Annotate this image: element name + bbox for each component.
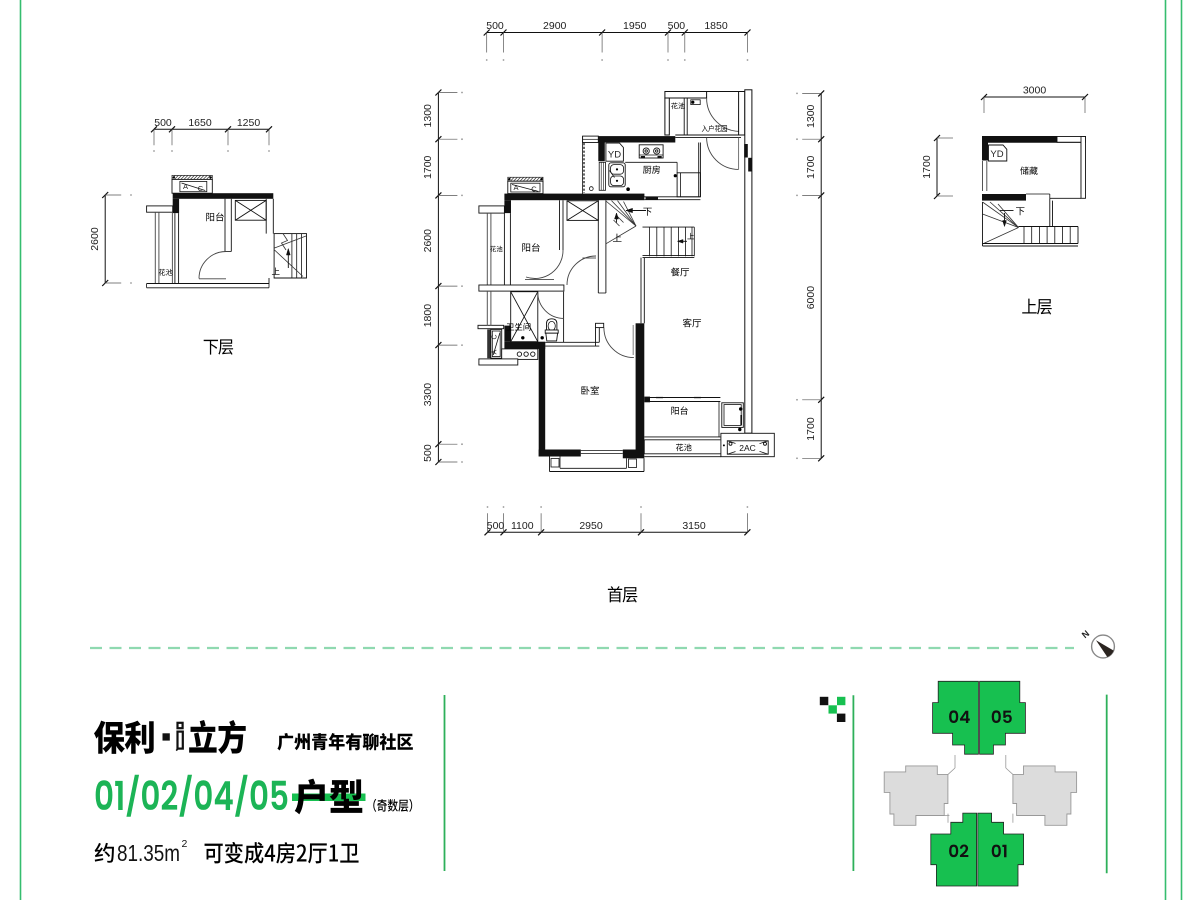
svg-text:500: 500 bbox=[422, 444, 434, 462]
svg-text:1300: 1300 bbox=[422, 104, 434, 128]
svg-text:2600: 2600 bbox=[422, 229, 434, 253]
svg-text:1700: 1700 bbox=[422, 155, 434, 179]
svg-text:2AC: 2AC bbox=[739, 443, 756, 453]
svg-text:6000: 6000 bbox=[805, 286, 817, 310]
svg-text:1100: 1100 bbox=[511, 520, 534, 532]
svg-text:1850: 1850 bbox=[704, 20, 728, 32]
svg-text:500: 500 bbox=[487, 520, 505, 532]
svg-text:3150: 3150 bbox=[682, 520, 706, 532]
svg-text:81.35m: 81.35m bbox=[117, 840, 180, 866]
svg-text:1700: 1700 bbox=[805, 155, 817, 179]
svg-text:C: C bbox=[531, 185, 537, 194]
svg-text:N: N bbox=[1080, 628, 1091, 640]
svg-text:1650: 1650 bbox=[188, 117, 212, 129]
svg-text:YD: YD bbox=[608, 150, 621, 161]
svg-text:2: 2 bbox=[182, 838, 188, 850]
svg-text:2600: 2600 bbox=[89, 227, 101, 251]
svg-text:1250: 1250 bbox=[237, 117, 261, 129]
svg-text:A: A bbox=[491, 349, 498, 354]
svg-text:A: A bbox=[183, 182, 188, 191]
svg-text:1800: 1800 bbox=[422, 304, 434, 328]
svg-text:A: A bbox=[513, 183, 518, 192]
svg-text:2900: 2900 bbox=[543, 20, 567, 32]
svg-text:3000: 3000 bbox=[1023, 85, 1047, 97]
svg-text:3300: 3300 bbox=[422, 383, 434, 407]
svg-text:500: 500 bbox=[154, 117, 172, 129]
svg-text:C: C bbox=[491, 334, 498, 339]
svg-text:YD: YD bbox=[990, 149, 1003, 160]
svg-text:C: C bbox=[198, 184, 204, 193]
svg-text:500: 500 bbox=[668, 20, 686, 32]
svg-text:1700: 1700 bbox=[805, 417, 817, 441]
svg-text:1700: 1700 bbox=[921, 155, 933, 179]
svg-text:500: 500 bbox=[486, 20, 504, 32]
svg-text:2950: 2950 bbox=[579, 520, 603, 532]
svg-text:1950: 1950 bbox=[623, 20, 647, 32]
svg-text:1300: 1300 bbox=[805, 104, 817, 128]
